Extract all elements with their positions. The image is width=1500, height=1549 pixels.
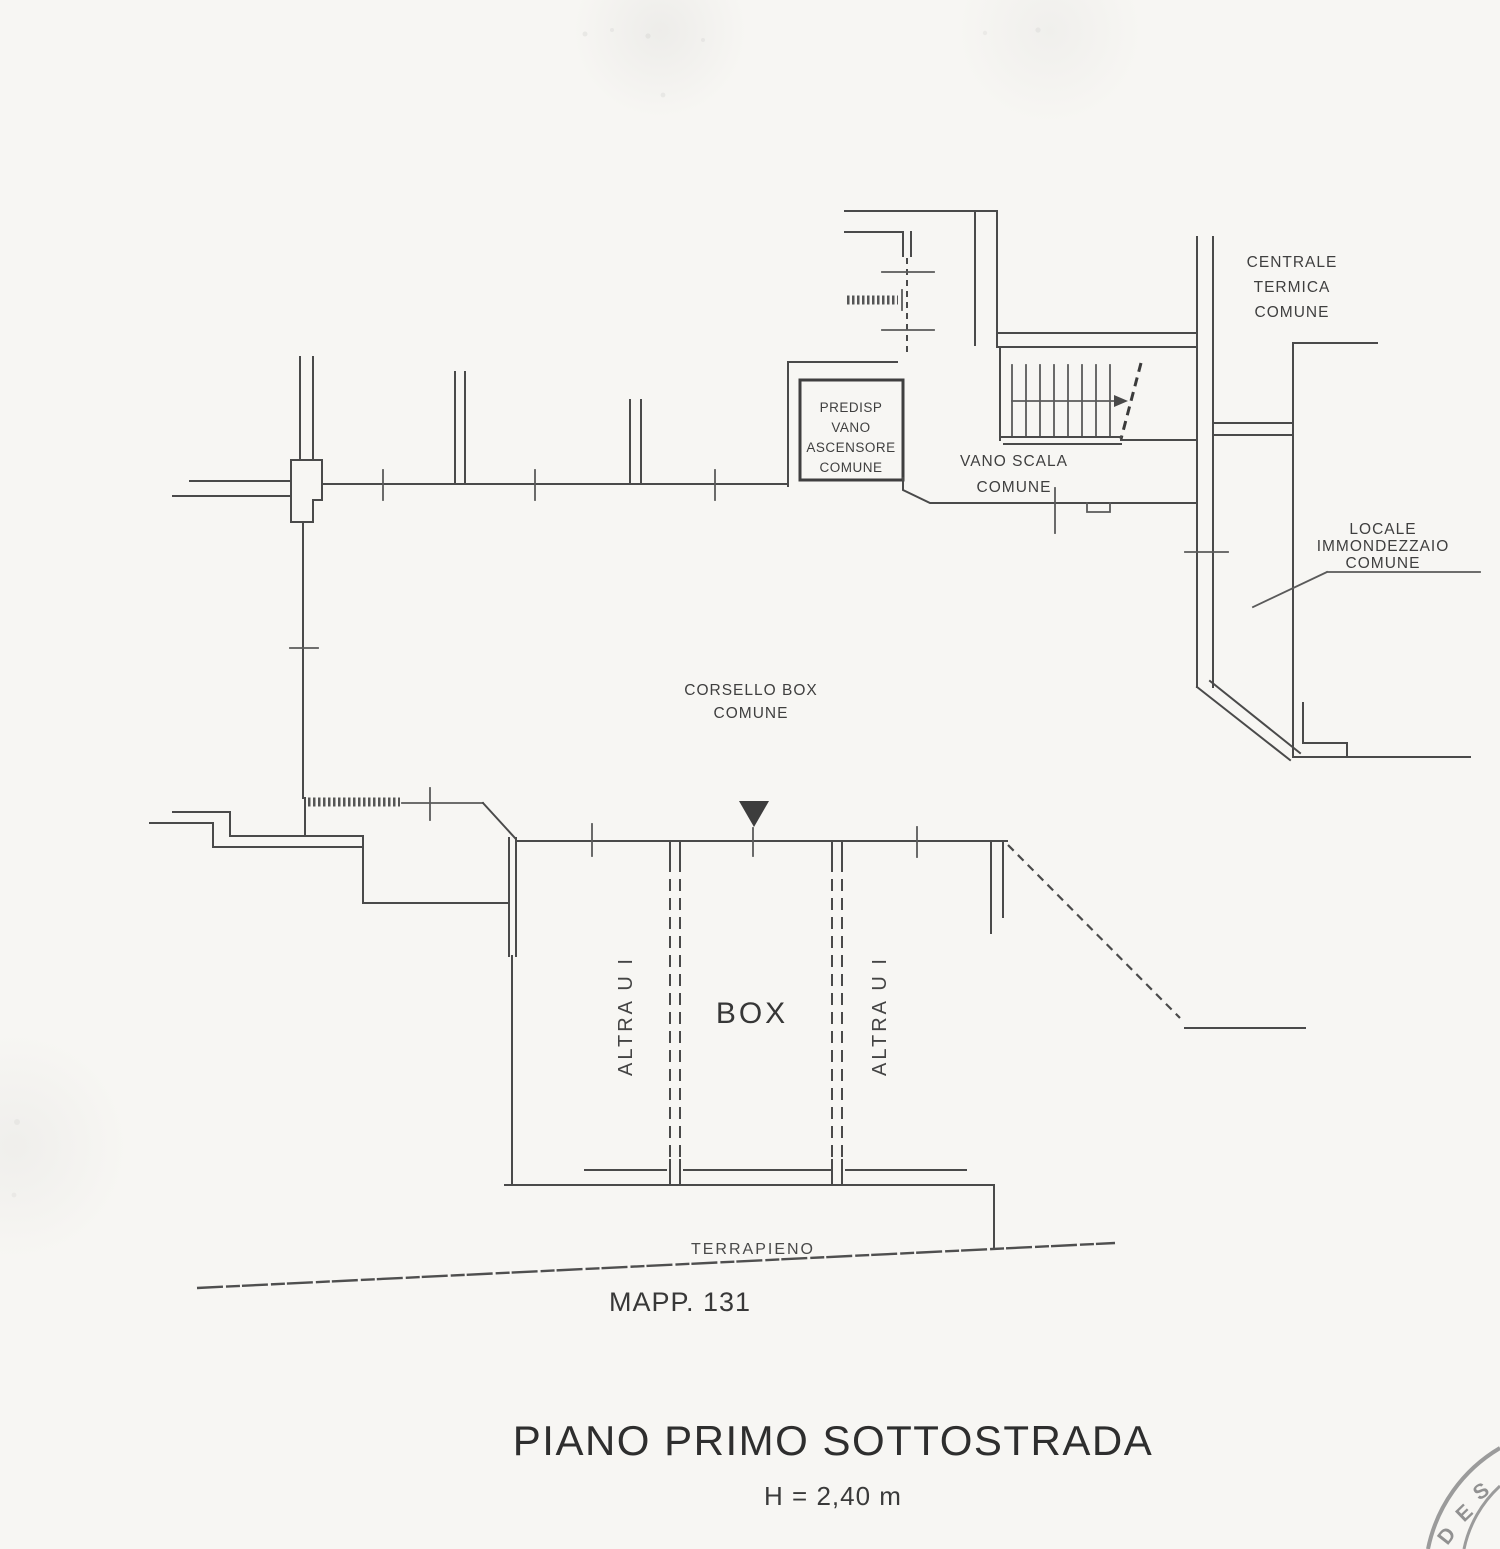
label-immondezzaio-line3: COMUNE: [1346, 555, 1421, 572]
wall-top-shaft: [845, 211, 997, 352]
label-corsello-line2: COMUNE: [714, 705, 789, 722]
plan-height-note: H = 2,40 m: [764, 1481, 902, 1511]
label-centrale-line2: TERMICA: [1254, 279, 1331, 296]
scanned-floor-plan-page: PREDISP VANO ASCENSORE COMUNE: [0, 0, 1500, 1549]
label-centrale-line3: COMUNE: [1255, 304, 1330, 321]
entrance-marker-icon: [739, 801, 769, 827]
wall-right-of-garage: [991, 843, 1305, 1028]
label-immondezzaio-line2: IMMONDEZZAIO: [1317, 538, 1450, 555]
label-mappale: MAPP. 131: [609, 1287, 751, 1317]
stamp-partial: D E S: [1428, 1448, 1500, 1549]
wall-garage-block: [505, 824, 1007, 1249]
wall-corsello-left: [290, 522, 318, 798]
label-predisp-line4: COMUNE: [820, 460, 883, 475]
pilaster-1: [455, 372, 465, 483]
label-predisp-line3: ASCENSORE: [806, 440, 895, 455]
label-predisp-line1: PREDISP: [820, 400, 883, 415]
room-labels: CENTRALE TERMICA COMUNE VANO SCALA COMUN…: [609, 254, 1449, 1317]
label-box: BOX: [716, 997, 788, 1030]
label-centrale-line1: CENTRALE: [1247, 254, 1338, 271]
wall-stub-up: [300, 357, 313, 460]
label-vano-scala-line2: COMUNE: [977, 479, 1052, 496]
wall-corsello-upper: [173, 357, 788, 522]
stair-arrow-icon: [1114, 395, 1128, 407]
terrain-boundary-line: [197, 1243, 1115, 1288]
dashed-ramp-line: [1008, 845, 1180, 1018]
label-altra-ui-left: ALTRA U I: [615, 956, 637, 1076]
label-predisp-line2: VANO: [831, 420, 870, 435]
plan-title: PIANO PRIMO SOTTOSTRADA: [513, 1417, 1153, 1464]
wall-corner-block: [291, 460, 322, 522]
garage-entrance: [305, 788, 515, 838]
room-predisp-ascensore: PREDISP VANO ASCENSORE COMUNE: [788, 362, 903, 486]
leader-immondezzaio: [1253, 572, 1480, 607]
wall-outer-lower-left: [150, 812, 507, 903]
label-altra-ui-right: ALTRA U I: [869, 956, 891, 1076]
label-vano-scala-line1: VANO SCALA: [960, 453, 1068, 470]
floor-plan-drawing: PREDISP VANO ASCENSORE COMUNE: [0, 0, 1500, 1549]
stamp-letter-3: S: [1469, 1478, 1494, 1505]
title-block: PIANO PRIMO SOTTOSTRADA H = 2,40 m: [513, 1417, 1153, 1511]
staircase: [997, 333, 1197, 444]
label-terrapieno: TERRAPIENO: [691, 1241, 815, 1258]
label-immondezzaio-line1: LOCALE: [1349, 521, 1416, 538]
label-corsello-line1: CORSELLO BOX: [684, 682, 817, 699]
pilaster-2: [630, 400, 641, 483]
stamp-letter-1: D: [1433, 1523, 1460, 1549]
